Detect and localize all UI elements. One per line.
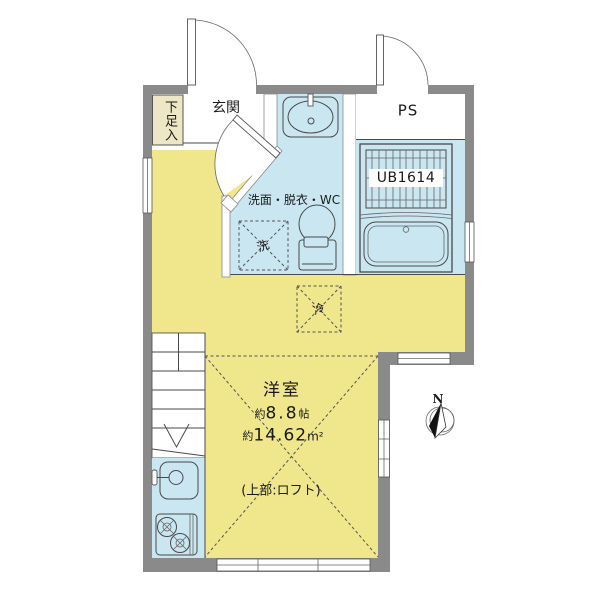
- washroom-label: 洗面・脱衣・WC: [248, 194, 340, 206]
- shoe-cabinet-label: 下足入: [159, 98, 176, 144]
- window-left: [143, 158, 152, 213]
- entrance-label: 玄関: [212, 101, 240, 115]
- floor-plan: 玄関 下足入 PS UB1614 洗面・脱衣・WC 洗 冷 洋室 約8.8帖 約…: [0, 0, 600, 600]
- pipe-space-door: [377, 35, 429, 85]
- window-right-lower: [379, 420, 390, 477]
- compass: [426, 403, 454, 438]
- unit-bath-label: UB1614: [377, 171, 435, 185]
- main-room-size-sqm: 約14.62m²: [242, 428, 323, 445]
- loft-note: (上部:ロフト): [241, 485, 321, 498]
- window-middle: [398, 353, 450, 364]
- compass-north-label: N: [433, 393, 444, 405]
- approx-prefix: 約: [254, 409, 265, 420]
- stairs: [152, 333, 205, 458]
- window-right-upper: [465, 222, 474, 262]
- main-room-label: 洋室: [263, 383, 301, 400]
- main-room-size-jo: 約8.8帖: [254, 406, 309, 423]
- entrance-door: [188, 19, 257, 85]
- window-bottom: [217, 559, 370, 571]
- approx-prefix: 約: [242, 431, 253, 442]
- pipe-space-label: PS: [398, 104, 419, 119]
- floor-plan-graphic: [0, 0, 600, 600]
